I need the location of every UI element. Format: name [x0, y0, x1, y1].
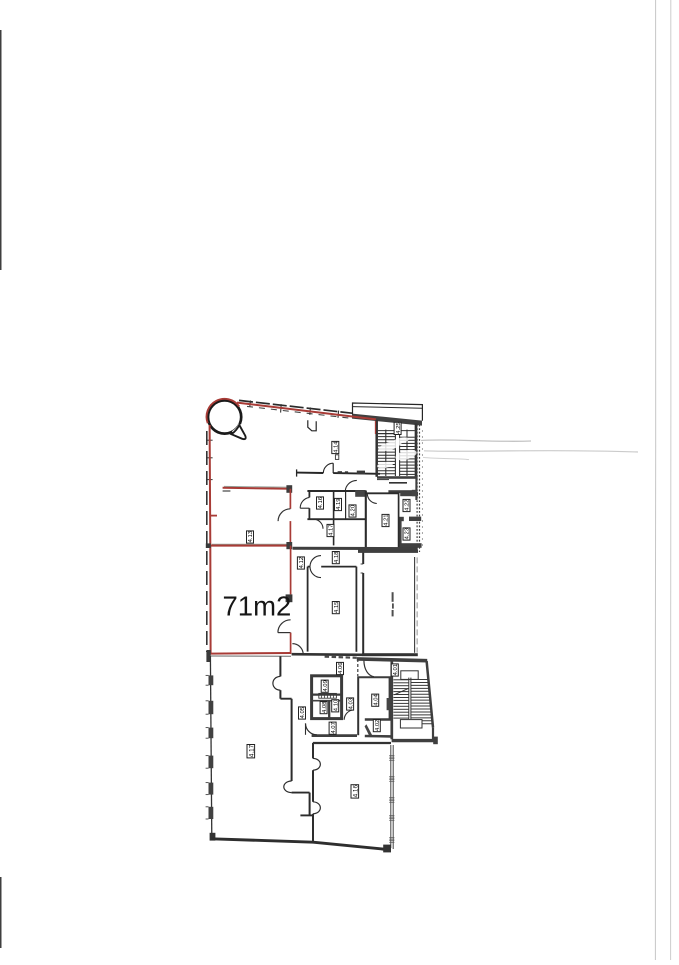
svg-text:4.17: 4.17	[248, 744, 255, 757]
svg-text:4.06: 4.06	[338, 662, 344, 674]
svg-text:4.08: 4.08	[322, 701, 328, 713]
svg-text:4.22: 4.22	[405, 499, 411, 510]
svg-text:4.12: 4.12	[299, 557, 305, 568]
svg-text:4.02: 4.02	[375, 720, 381, 731]
svg-text:4.09: 4.09	[323, 680, 329, 691]
svg-text:4.04: 4.04	[373, 693, 379, 705]
svg-text:4.03: 4.03	[348, 697, 354, 709]
svg-text:4.15: 4.15	[334, 601, 340, 613]
svg-text:4.25: 4.25	[396, 422, 402, 434]
svg-text:4.14: 4.14	[334, 441, 340, 453]
svg-text:4.16: 4.16	[318, 496, 324, 508]
svg-text:4.01: 4.01	[393, 664, 399, 675]
svg-text:4.10: 4.10	[333, 699, 339, 711]
svg-text:4.17: 4.17	[329, 524, 335, 535]
svg-text:71m2: 71m2	[223, 591, 292, 622]
svg-text:4.05: 4.05	[300, 706, 306, 718]
svg-text:4.19: 4.19	[336, 498, 342, 509]
svg-text:4.16: 4.16	[352, 785, 359, 798]
svg-text:4.13: 4.13	[248, 530, 254, 542]
svg-text:4.20: 4.20	[351, 504, 357, 516]
svg-text:4.18: 4.18	[334, 551, 340, 563]
svg-text:4.07: 4.07	[331, 722, 337, 733]
svg-text:4.21: 4.21	[384, 514, 390, 525]
svg-text:4.23: 4.23	[405, 527, 411, 539]
